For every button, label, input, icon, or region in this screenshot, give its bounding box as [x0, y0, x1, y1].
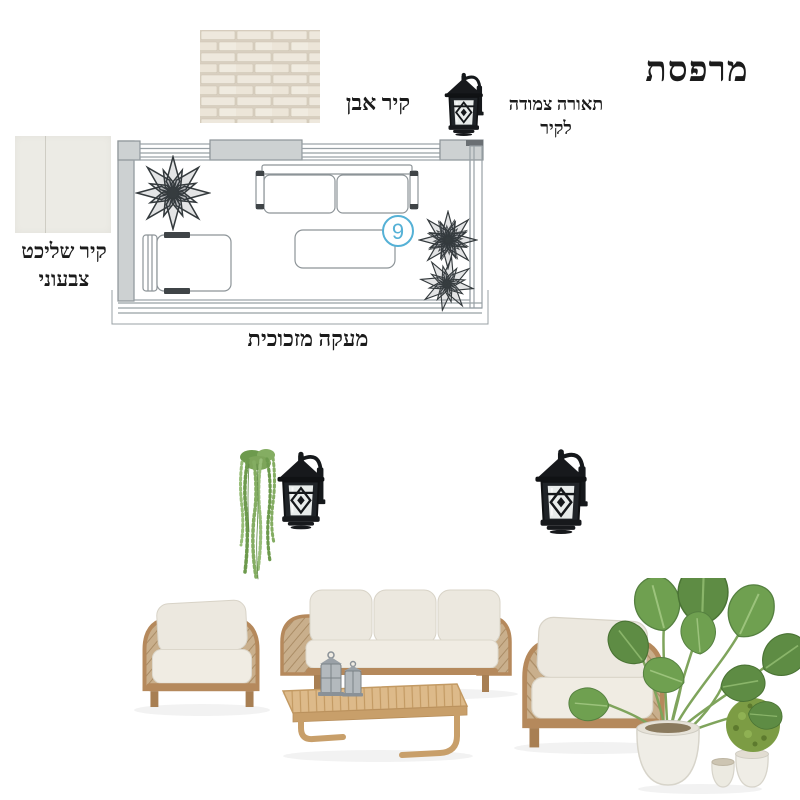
floorplan-drawing: 9 — [110, 138, 490, 333]
outdoor-armchair-left — [145, 600, 258, 707]
plaster-texture-swatch — [15, 136, 111, 233]
wall-light-label: תאורה צמודה לקיר — [494, 92, 618, 140]
wall-lantern-right-icon — [524, 448, 596, 534]
plaster-label-line1: קיר שליכט — [8, 237, 120, 265]
plan-coffee-table — [295, 230, 395, 268]
plan-plant-right-dark — [420, 212, 477, 269]
moodboard-canvas: מרפסת קיר אבן תאורה צמודה לקיר קיר שליכט — [0, 0, 800, 800]
marker-number: 9 — [392, 219, 404, 244]
plan-plant-top-left — [137, 157, 209, 229]
wall-light-label-line1: תאורה צמודה — [494, 92, 618, 116]
outdoor-sofa — [282, 590, 510, 692]
wall-lantern-icon — [438, 72, 488, 136]
plaster-seam — [45, 136, 46, 233]
plan-sofa — [256, 165, 418, 213]
outdoor-furniture-set — [100, 578, 800, 800]
brick-texture-image — [200, 30, 320, 123]
brick-texture-swatch — [200, 30, 320, 123]
floorplan-marker: 9 — [383, 216, 413, 246]
glass-railing-label: מעקה מזכוכית — [226, 326, 390, 352]
stone-wall-label: קיר אבן — [330, 90, 426, 116]
wall-light-label-line2: לקיר — [494, 116, 618, 140]
plaster-wall-label: קיר שליכט צבעוני — [8, 237, 120, 293]
plan-armchair — [143, 232, 231, 294]
large-planter-pot — [637, 721, 699, 786]
wall-lantern-left-icon — [270, 450, 330, 530]
plaster-label-line2: צבעוני — [8, 265, 120, 293]
small-pot — [712, 759, 734, 788]
board-title: מרפסת — [632, 50, 762, 90]
coffee-table — [283, 684, 467, 755]
